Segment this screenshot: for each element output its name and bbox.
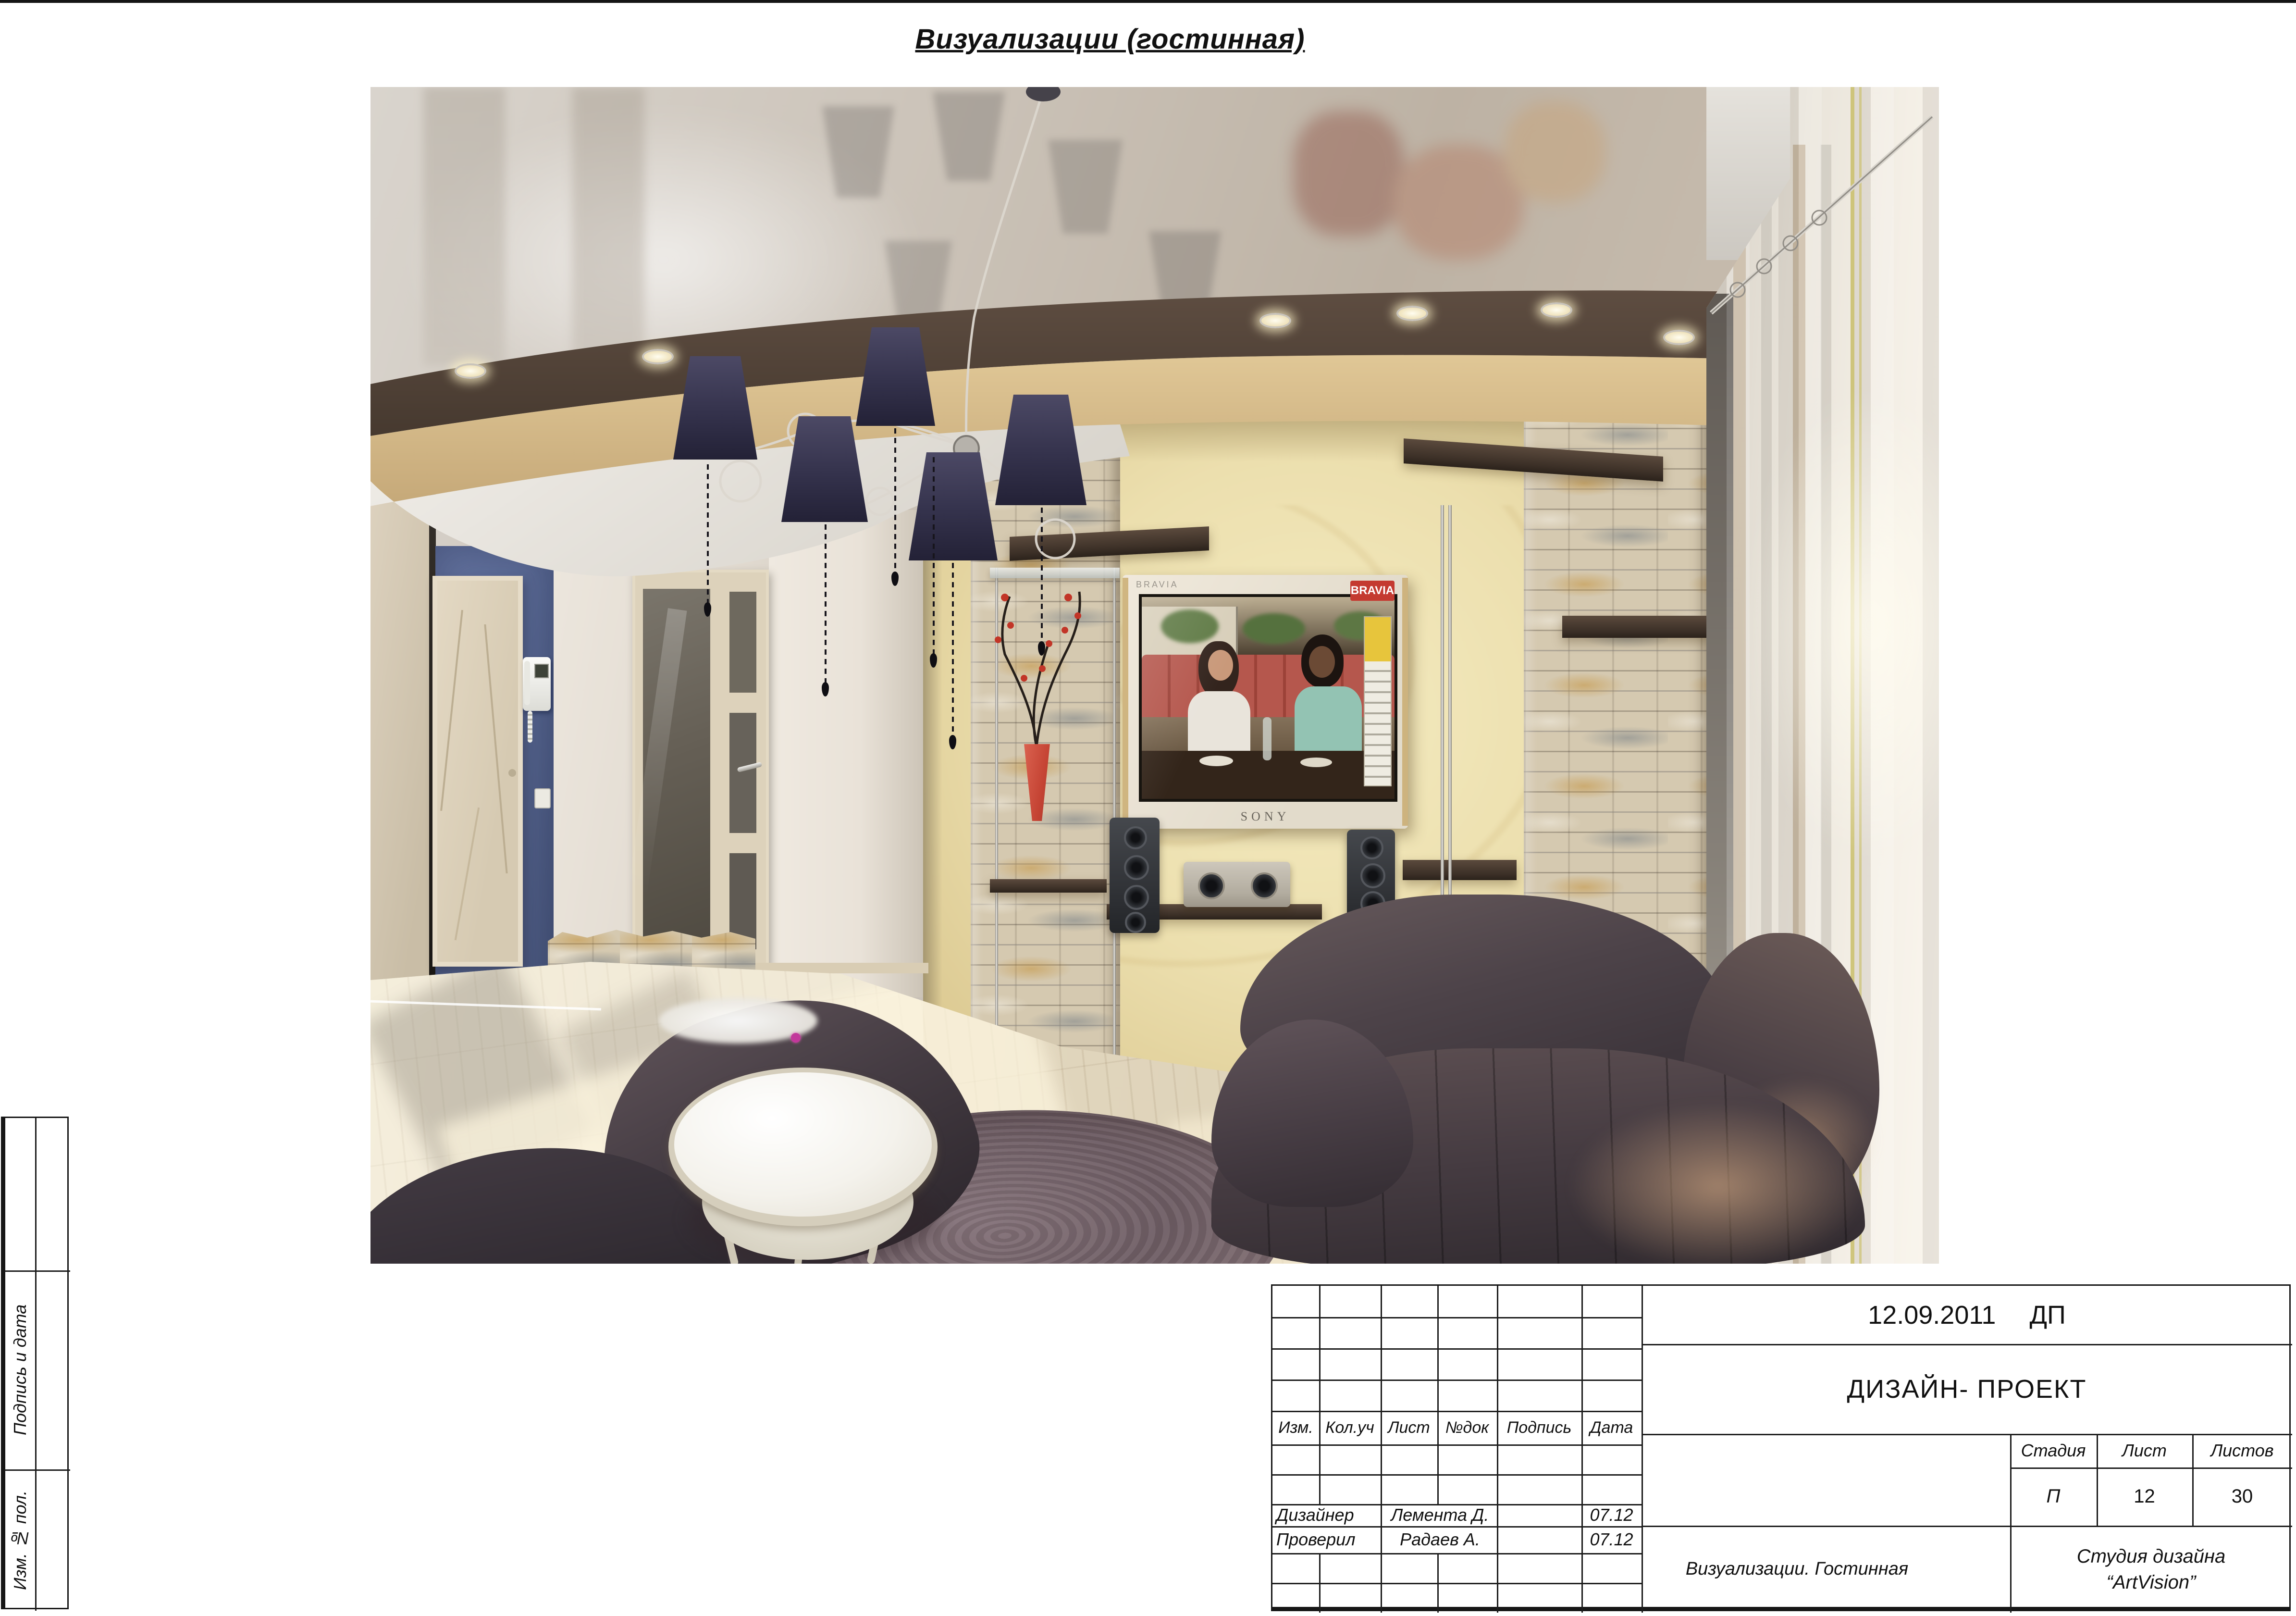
tb-date-doc: 12.09.2011 ДП: [1642, 1286, 2292, 1344]
tb-studio: Студия дизайна “ArtVision”: [2010, 1526, 2292, 1613]
tb-col-line: [1319, 1286, 1321, 1504]
tb-col-header-data: Дата: [1581, 1411, 1642, 1444]
tb-col-header-izm: Изм.: [1272, 1411, 1319, 1444]
side-label-signature-date: Подпись и дата: [5, 1270, 35, 1469]
tb-name-designer: Лемента Д.: [1383, 1504, 1497, 1526]
coffee-table: [668, 1068, 947, 1264]
side-strip-divider: [35, 1118, 37, 1611]
table-top: [668, 1068, 938, 1226]
table-top-surface: [674, 1072, 932, 1217]
tb-doc-type: ДП: [2029, 1300, 2065, 1330]
tb-stage-label: Стадия: [2010, 1434, 2097, 1467]
tb-col-line: [1581, 1286, 1583, 1613]
tb-studio-line1: Студия дизайна: [2077, 1543, 2225, 1569]
tb-row-line: [1272, 1348, 1642, 1350]
tb-row-line: [1272, 1380, 1642, 1381]
tb-date: 12.09.2011: [1868, 1300, 1996, 1330]
armchair-sunlight: [1571, 1104, 1865, 1264]
side-strip: Подпись и дата Изм. № пол.: [1, 1117, 69, 1609]
tb-col-header-list: Лист: [1381, 1411, 1437, 1444]
tb-row-line: [1272, 1474, 1642, 1476]
bead-string: [952, 563, 954, 736]
page-title: Визуализации (гостинная): [788, 23, 1432, 55]
bead-string: [1041, 508, 1043, 642]
tb-stage-value: П: [2010, 1467, 2097, 1526]
tb-col-line: [1381, 1286, 1382, 1613]
bead-string: [933, 457, 935, 654]
tb-col-line: [1497, 1286, 1498, 1613]
armchair: [1211, 875, 1894, 1264]
tb-row-line: [1272, 1583, 1642, 1584]
tb-sheet-value: 12: [2097, 1467, 2192, 1526]
bead-string: [707, 464, 709, 604]
tb-col-header-koluch: Кол.уч: [1319, 1411, 1381, 1444]
tb-sheets-label: Листов: [2192, 1434, 2292, 1467]
title-block: Изм. Кол.уч Лист №док Подпись Дата Дизай…: [1271, 1284, 2291, 1611]
tb-row-line: [1272, 1317, 1642, 1318]
bead-string: [825, 524, 827, 683]
tb-name-checker: Радаев А.: [1383, 1526, 1497, 1553]
sofa-flower: [791, 1033, 801, 1043]
tb-col-header-podpis: Подпись: [1497, 1411, 1581, 1444]
page-top-border: [0, 0, 2296, 3]
tb-date-checker: 07.12: [1581, 1526, 1642, 1553]
bead-string: [894, 428, 896, 572]
render-image: BRAVIA SONY BRAVIA: [370, 87, 1939, 1264]
sheet: Визуализации (гостинная): [0, 0, 2296, 1616]
tb-row-line: [1272, 1553, 1642, 1554]
tb-project-title: ДИЗАЙН- ПРОЕКТ: [1642, 1344, 2292, 1434]
tb-subtitle: Визуализации. Гостинная: [1642, 1526, 2010, 1613]
chandelier-canopy: [1026, 87, 1061, 101]
tb-date-designer: 07.12: [1581, 1504, 1642, 1526]
tb-row-line: [1272, 1444, 1642, 1446]
tb-sheets-value: 30: [2192, 1467, 2292, 1526]
tb-col-line: [1437, 1286, 1439, 1504]
tb-col-header-ndok: №док: [1437, 1411, 1497, 1444]
tb-role-checker: Проверил: [1276, 1526, 1380, 1553]
tb-studio-line2: “ArtVision”: [2107, 1569, 2196, 1595]
side-label-inventory-no: Изм. № пол.: [5, 1469, 35, 1611]
tb-role-designer: Дизайнер: [1276, 1504, 1380, 1526]
tb-sheet-label: Лист: [2097, 1434, 2192, 1467]
